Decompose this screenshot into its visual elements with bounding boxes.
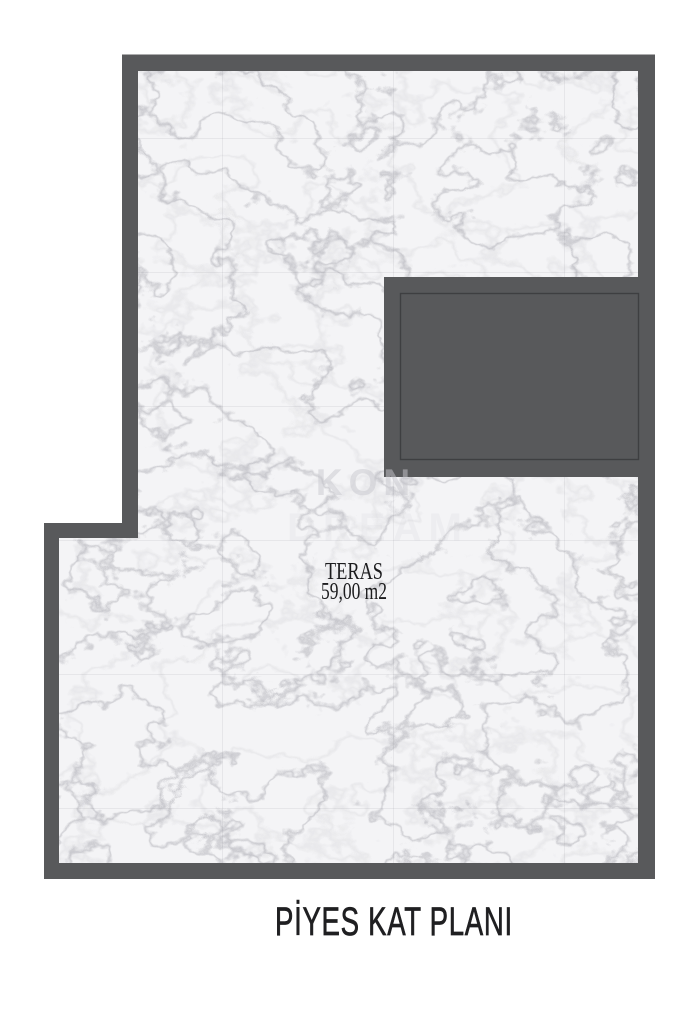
svg-text:DREAM: DREAM — [287, 506, 469, 550]
svg-text:59,00 m2: 59,00 m2 — [321, 579, 387, 605]
svg-text:KON: KON — [316, 462, 416, 503]
